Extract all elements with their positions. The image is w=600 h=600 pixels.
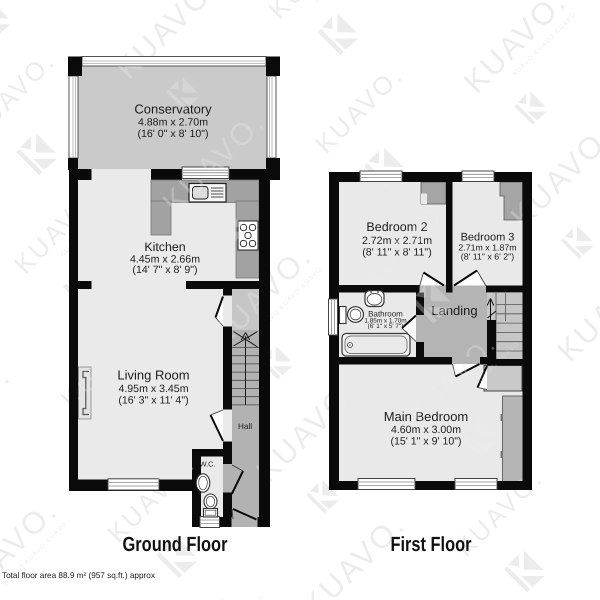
svg-text:Conservatory: Conservatory [134, 102, 212, 117]
svg-text:(16' 0" x 8' 10"): (16' 0" x 8' 10") [137, 128, 208, 140]
svg-text:(14' 7" x 8' 9"): (14' 7" x 8' 9") [132, 264, 197, 276]
svg-text:4.60m x 3.00m: 4.60m x 3.00m [391, 424, 461, 436]
svg-text:W.C.: W.C. [200, 460, 216, 469]
svg-text:(6' 1" x 5' 7"): (6' 1" x 5' 7") [368, 323, 404, 330]
svg-text:Hall: Hall [238, 422, 252, 431]
svg-text:Total floor area 88.9 m² (957: Total floor area 88.9 m² (957 sq.ft.) ap… [2, 571, 155, 580]
svg-text:Kitchen: Kitchen [144, 240, 185, 254]
svg-text:Living Room: Living Room [117, 368, 189, 383]
svg-text:Ground Floor: Ground Floor [123, 533, 228, 556]
svg-text:First Floor: First Floor [391, 533, 472, 556]
svg-text:4.95m x 3.45m: 4.95m x 3.45m [118, 383, 188, 395]
svg-text:(16' 3" x 11' 4"): (16' 3" x 11' 4") [118, 395, 188, 407]
svg-text:(8' 11" x 6' 2"): (8' 11" x 6' 2") [461, 252, 515, 262]
svg-text:4.88m x 2.70m: 4.88m x 2.70m [138, 117, 208, 129]
svg-text:(15' 1" x 9' 10"): (15' 1" x 9' 10") [390, 436, 461, 448]
